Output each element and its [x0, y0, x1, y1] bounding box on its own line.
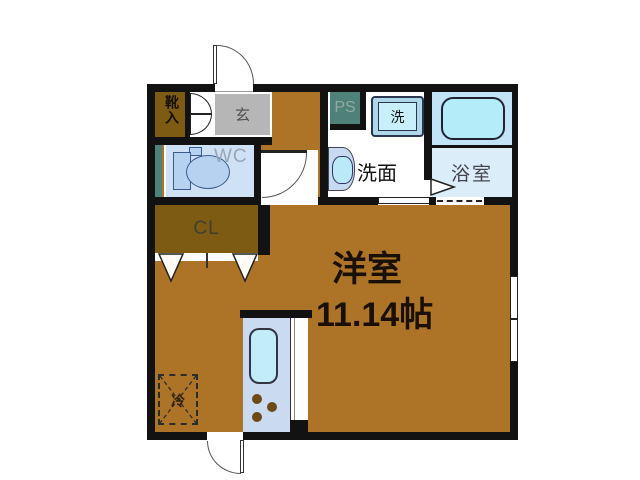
refrigerator-label: 冷 — [171, 391, 185, 411]
closet: CL — [155, 205, 258, 253]
kitchen-side-panel — [290, 318, 308, 420]
window-center-tick — [511, 318, 517, 320]
wall-bath-left — [424, 92, 432, 180]
shoe-cabinet-label: 靴入 — [162, 95, 182, 125]
wc-room: WC — [164, 145, 254, 197]
closet-door-tick — [206, 253, 208, 268]
closet-door-triangle-left-icon — [158, 253, 184, 283]
stove-burner-icon — [267, 402, 277, 412]
kitchen-stub — [290, 420, 308, 432]
sink-bowl-icon — [332, 156, 353, 184]
closet-label: CL — [193, 218, 219, 240]
entrance-area: 玄 — [213, 92, 272, 137]
kitchen-sink-icon — [249, 328, 278, 384]
refrigerator-space: 冷 — [158, 374, 198, 425]
stove-burner-icon — [252, 394, 262, 404]
main-room-size: 11.14帖 — [316, 293, 433, 339]
sliding-door-dash-line — [437, 200, 482, 202]
kitchen-cap-top — [240, 310, 312, 318]
bathroom-label: 浴室 — [451, 159, 493, 186]
entrance-door-swing-arc — [217, 45, 254, 84]
closet-door-triangle-right-icon — [232, 253, 258, 283]
wall-hall-left — [253, 137, 261, 205]
kitchen-panel-line — [294, 318, 295, 420]
washing-machine-inner: 洗 — [378, 102, 417, 131]
pipe-space-wall-bottom — [330, 124, 366, 130]
entrance-label: 玄 — [235, 104, 250, 125]
wall-mid-center — [318, 197, 378, 205]
bathtub-icon — [441, 97, 505, 140]
washroom-label: 洗面 — [357, 157, 397, 186]
sliding-door-stop — [429, 197, 436, 205]
wall-bottom — [147, 432, 518, 440]
wall-mid-left — [147, 197, 261, 205]
wall-closet-right — [258, 197, 270, 255]
stove-burner-icon — [252, 412, 262, 422]
entrance-door-gap — [215, 84, 253, 92]
wc-label: WC — [214, 146, 248, 168]
washing-machine-label: 洗 — [391, 107, 405, 127]
bathroom-door-triangle-icon — [430, 178, 456, 196]
main-room-name: 洋室 — [316, 246, 433, 293]
wall-top — [147, 84, 518, 92]
wall-mid-right — [484, 197, 512, 205]
bottom-door-swing-arc — [207, 441, 241, 474]
sliding-door-panel-icon — [378, 197, 430, 204]
main-room-title: 洋室 11.14帖 — [316, 246, 433, 339]
wc-pipe-strip — [155, 145, 162, 197]
floor-plan: 靴入 玄 WC PS 洗 洗面 浴室 — [0, 0, 640, 480]
bottom-door-gap — [207, 432, 243, 440]
pipe-space: PS — [330, 92, 360, 124]
wall-washroom-left — [320, 92, 328, 205]
window-right — [510, 276, 518, 362]
shoe-cabinet: 靴入 — [155, 92, 185, 137]
pipe-space-label: PS — [334, 99, 355, 117]
